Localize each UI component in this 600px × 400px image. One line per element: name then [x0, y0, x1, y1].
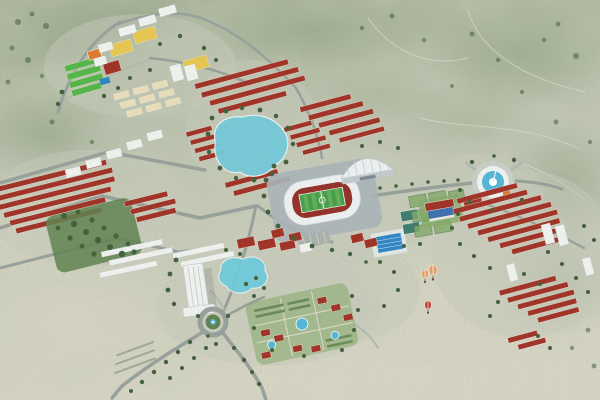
- render-grain-overlay: [0, 0, 600, 400]
- masterplan-canvas: [0, 0, 600, 400]
- masterplan-rendering: [0, 0, 600, 400]
